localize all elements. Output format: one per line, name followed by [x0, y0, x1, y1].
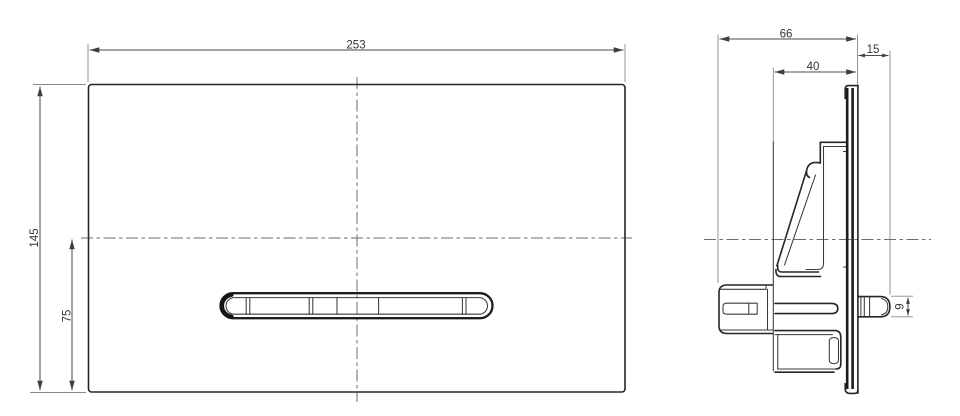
dim-label-button-axis: 75: [62, 310, 74, 323]
button-profile: [858, 297, 890, 317]
drawing-canvas: 253 145 75: [0, 0, 960, 416]
button-dividers: [246, 298, 466, 314]
dim-panel-offset: 15: [859, 44, 889, 56]
dim-overall-width: 253: [90, 40, 624, 52]
flush-plate-technical-drawing: 253 145 75: [0, 0, 960, 416]
dim-overall-height: 145: [29, 87, 41, 391]
dim-label-frame-depth: 40: [807, 61, 820, 73]
dim-frame-depth: 40: [775, 61, 857, 73]
dim-label-overall-width: 253: [346, 40, 365, 52]
latch-profile: [719, 285, 773, 334]
dim-label-overall-depth: 66: [780, 29, 793, 41]
dim-button-protrusion: 9: [895, 298, 909, 316]
frame-profile: [773, 142, 847, 371]
dim-button-axis: 75: [62, 240, 74, 391]
lower-housing: [775, 331, 841, 373]
dim-overall-depth: 66: [720, 29, 857, 41]
dim-label-button-protrusion: 9: [895, 303, 907, 309]
side-view: 66 15 40 9: [704, 29, 931, 394]
front-extension-lines: [30, 44, 625, 393]
dim-label-overall-height: 145: [29, 228, 41, 247]
dim-label-panel-offset: 15: [867, 44, 880, 56]
front-view: 253 145 75: [29, 40, 632, 403]
lever-profile: [776, 162, 821, 276]
push-rod: [775, 303, 838, 313]
